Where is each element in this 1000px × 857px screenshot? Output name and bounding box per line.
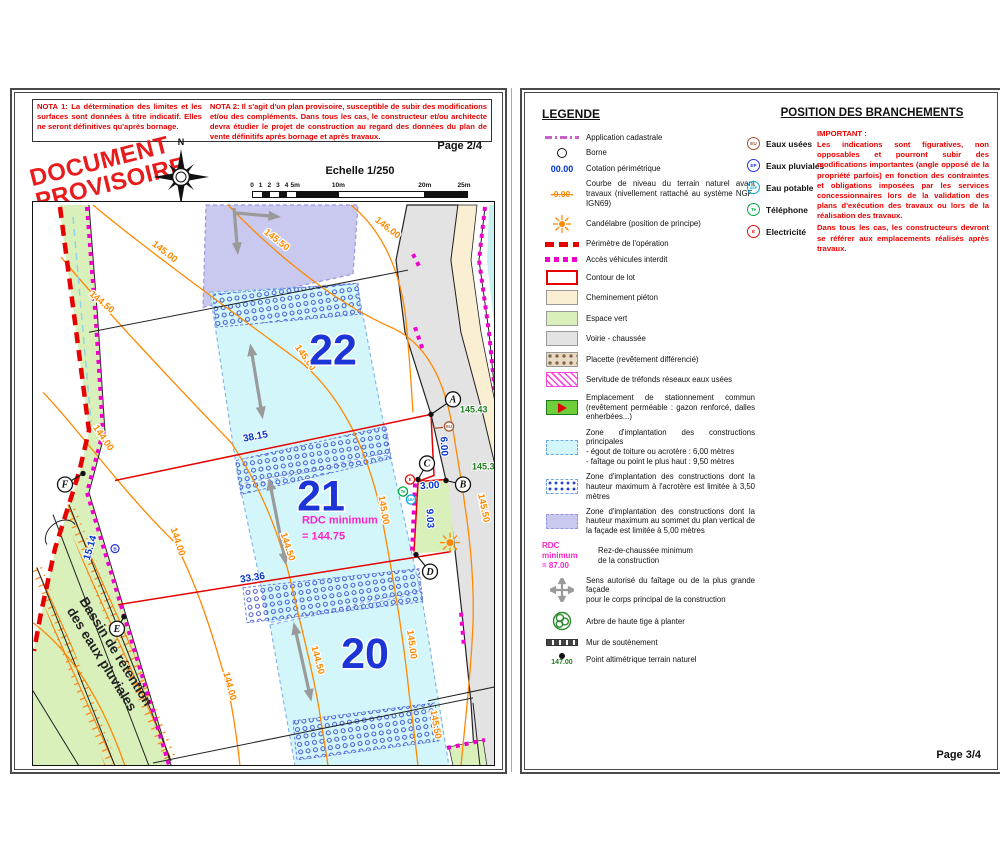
legend-item: Cheminement piéton — [542, 290, 755, 305]
contour-lot-swatch — [542, 270, 582, 285]
application-cadastrale-swatch — [542, 136, 582, 139]
dimension-label: 3.00 — [420, 480, 441, 492]
arbre-icon — [542, 610, 582, 632]
mur-soutenement-swatch — [542, 639, 582, 646]
utility-marker-code: E — [409, 477, 412, 482]
electricite-icon: E — [747, 225, 760, 238]
scale-bar-segments — [252, 191, 468, 198]
nota2-text: NOTA 2: Il s'agit d'un plan provisoire, … — [206, 100, 491, 141]
scale-tick: 1 — [259, 182, 263, 189]
servitude-swatch — [542, 372, 582, 387]
legend-label: Application cadastrale — [582, 133, 662, 143]
legend-label: Mur de soutènement — [582, 638, 658, 648]
point-letter: B — [459, 480, 467, 491]
spot-elevation-label: 145.43 — [460, 404, 488, 414]
scale-tick: 5m — [290, 182, 299, 189]
legend-item: Espace vert — [542, 311, 755, 326]
point-letter: D — [425, 567, 433, 578]
espace-vert-swatch — [542, 311, 582, 326]
cotation-swatch: 00.00 — [542, 164, 582, 174]
point-letter: A — [449, 395, 457, 406]
branchement-label: Electricité — [760, 227, 806, 237]
point-altimetrique-swatch: 147.00 — [542, 653, 582, 666]
compass-north-label: N — [178, 137, 185, 147]
zone-facade-swatch — [542, 514, 582, 529]
eu-icon: EU — [747, 137, 760, 150]
plan-page: NOTA 1: La détermination des limites et … — [10, 88, 507, 774]
legend-item: RDC minimum = 87.00 Rez-de-chaussée mini… — [542, 541, 755, 570]
legend-item: 147.00 Point altimétrique terrain nature… — [542, 653, 755, 666]
legend-item: Périmètre de l'opération — [542, 239, 755, 249]
legend-item: Zone d'implantation des constructions do… — [542, 507, 755, 536]
legend-item: Voirie - chaussée — [542, 331, 755, 346]
legend-item: Sens autorisé du faîtage ou de la plus g… — [542, 576, 755, 605]
utility-marker-code: AEP — [408, 498, 416, 502]
point-marker-dot — [80, 471, 85, 476]
zone-principale-swatch — [542, 440, 582, 455]
page-number: Page 2/4 — [437, 140, 482, 152]
legend-item: -0.00- Courbe de niveau du terrain natur… — [542, 179, 755, 208]
legend-label: Cheminement piéton — [582, 293, 658, 303]
legend-page-frame: LEGENDE POSITION DES BRANCHEMENTS Applic… — [524, 92, 998, 770]
utility-marker-code: EU — [446, 424, 452, 429]
legend-label: Périmètre de l'opération — [582, 239, 669, 249]
branchements-title: POSITION DES BRANCHEMENTS — [763, 107, 981, 119]
candelabre-icon — [440, 533, 460, 553]
dimension-label: 6.00 — [437, 436, 449, 456]
lot-number: 22 — [309, 326, 357, 374]
legend-label: Zone d'implantation des constructions pr… — [582, 428, 755, 467]
zone-acrotere-swatch — [542, 479, 582, 494]
legend-label: Emplacement de stationnement commun (rev… — [582, 393, 755, 422]
legend-item: Accès véhicules interdit — [542, 255, 755, 265]
lot-number: 20 — [341, 630, 389, 678]
legend-list: Application cadastrale Borne 00.00 Cotat… — [542, 133, 755, 672]
nota-box: NOTA 1: La détermination des limites et … — [32, 99, 492, 142]
legend-label: Point altimétrique terrain naturel — [582, 655, 697, 665]
legend-label: Sens autorisé du faîtage ou de la plus g… — [582, 576, 755, 605]
legend-item: Arbre de haute tige à planter — [542, 610, 755, 632]
point-marker-dot — [443, 478, 448, 483]
legend-label: Rez-de-chaussée minimum de la constructi… — [594, 546, 693, 565]
legend-item: Mur de soutènement — [542, 638, 755, 648]
voirie-swatch — [542, 331, 582, 346]
legend-item: 00.00 Cotation périmétrique — [542, 164, 755, 174]
important-note: IMPORTANT : Les indications sont figurat… — [817, 129, 989, 256]
courbe-niveau-swatch: -0.00- — [542, 189, 582, 199]
candelabre-icon — [542, 214, 582, 234]
perimetre-swatch — [542, 242, 582, 247]
branchement-label: Eaux usées — [760, 139, 812, 149]
scale-tick: 25m — [457, 182, 470, 189]
legend-item: Borne — [542, 148, 755, 158]
legend-item: Servitude de tréfonds réseaux eaux usées — [542, 372, 755, 387]
legend-page: LEGENDE POSITION DES BRANCHEMENTS Applic… — [520, 88, 1000, 774]
legend-item: Candélabre (position de principe) — [542, 214, 755, 234]
scale-tick: 2 — [267, 182, 271, 189]
legend-item: Application cadastrale — [542, 133, 755, 143]
scale-title: Echelle 1/250 — [245, 165, 475, 177]
legend-title: LEGENDE — [542, 107, 600, 121]
point-marker-dot — [121, 614, 126, 619]
plan-page-frame: NOTA 1: La détermination des limites et … — [14, 92, 503, 770]
legend-item: Zone d'implantation des constructions do… — [542, 472, 755, 501]
legend-item: Placette (revêtement différencié) — [542, 352, 755, 367]
placette-swatch — [542, 352, 582, 367]
dimension-label: 9.03 — [423, 508, 435, 528]
scale-bar: 0 1 2 3 4 5m 10m 20m 25m — [252, 182, 468, 200]
ep-icon: EP — [747, 159, 760, 172]
legend-item: Contour de lot — [542, 270, 755, 285]
point-letter: E — [113, 624, 121, 635]
aep-icon: AEP — [747, 181, 760, 194]
legend-label: Courbe de niveau du terrain naturel avan… — [582, 179, 755, 208]
scale-tick: 0 — [250, 182, 254, 189]
site-plan-map: Bassin de rétention des eaux pluviales R… — [32, 201, 495, 766]
important-paragraph: Dans tous les cas, les constructeurs dev… — [817, 223, 989, 253]
important-paragraph: Les indications sont figuratives, non op… — [817, 140, 989, 221]
legend-label: Accès véhicules interdit — [582, 255, 667, 265]
utility-marker-code: Te — [401, 489, 406, 494]
legend-label: Zone d'implantation des constructions do… — [582, 472, 755, 501]
stationnement-swatch — [542, 400, 582, 415]
scale-tick: 20m — [418, 182, 431, 189]
cheminement-swatch — [542, 290, 582, 305]
legend-label: Borne — [582, 148, 607, 158]
scale-tick: 4 — [285, 182, 289, 189]
compass-rose-icon: N — [152, 135, 210, 207]
legend-label: Candélabre (position de principe) — [582, 219, 701, 229]
legend-label: Zone d'implantation des constructions do… — [582, 507, 755, 536]
scale-ticks: 0 1 2 3 4 5m 10m 20m 25m — [252, 182, 468, 190]
legend-label: Cotation périmétrique — [582, 164, 661, 174]
legend-item: Zone d'implantation des constructions pr… — [542, 428, 755, 467]
scale-tick: 10m — [332, 182, 345, 189]
point-marker-dot — [428, 412, 433, 417]
branchement-label: Eaux pluviales — [760, 161, 824, 171]
legend-label: Espace vert — [582, 314, 627, 324]
spot-elevation-label: 145.37 — [472, 461, 494, 471]
legend-label: Contour de lot — [582, 273, 635, 283]
legend-label: Placette (revêtement différencié) — [582, 355, 699, 365]
branchement-label: Téléphone — [760, 205, 808, 215]
borne-icon — [542, 148, 582, 158]
scale-tick: 3 — [276, 182, 280, 189]
page-divider — [511, 88, 512, 772]
site-plan-svg: Bassin de rétention des eaux pluviales R… — [33, 202, 494, 765]
lot-number: 21 — [297, 473, 345, 521]
legend-label: Voirie - chaussée — [582, 334, 646, 344]
sens-faitage-icon — [542, 578, 582, 602]
rdc-minimum-swatch: RDC minimum = 87.00 — [542, 541, 594, 570]
acces-interdit-swatch — [542, 257, 582, 262]
legend-label: Arbre de haute tige à planter — [582, 617, 685, 627]
point-marker-dot — [413, 552, 418, 557]
point-marker-dot — [415, 477, 420, 482]
branchement-label: Eau potable — [760, 183, 813, 193]
telephone-icon: Te — [747, 203, 760, 216]
page-number: Page 3/4 — [936, 749, 981, 761]
point-letter: C — [424, 459, 431, 470]
point-letter: F — [61, 480, 69, 491]
legend-label: Servitude de tréfonds réseaux eaux usées — [582, 375, 732, 385]
important-title: IMPORTANT : — [817, 129, 989, 139]
legend-item: Emplacement de stationnement commun (rev… — [542, 393, 755, 422]
rdc-minimum-value: = 144.75 — [302, 531, 345, 543]
